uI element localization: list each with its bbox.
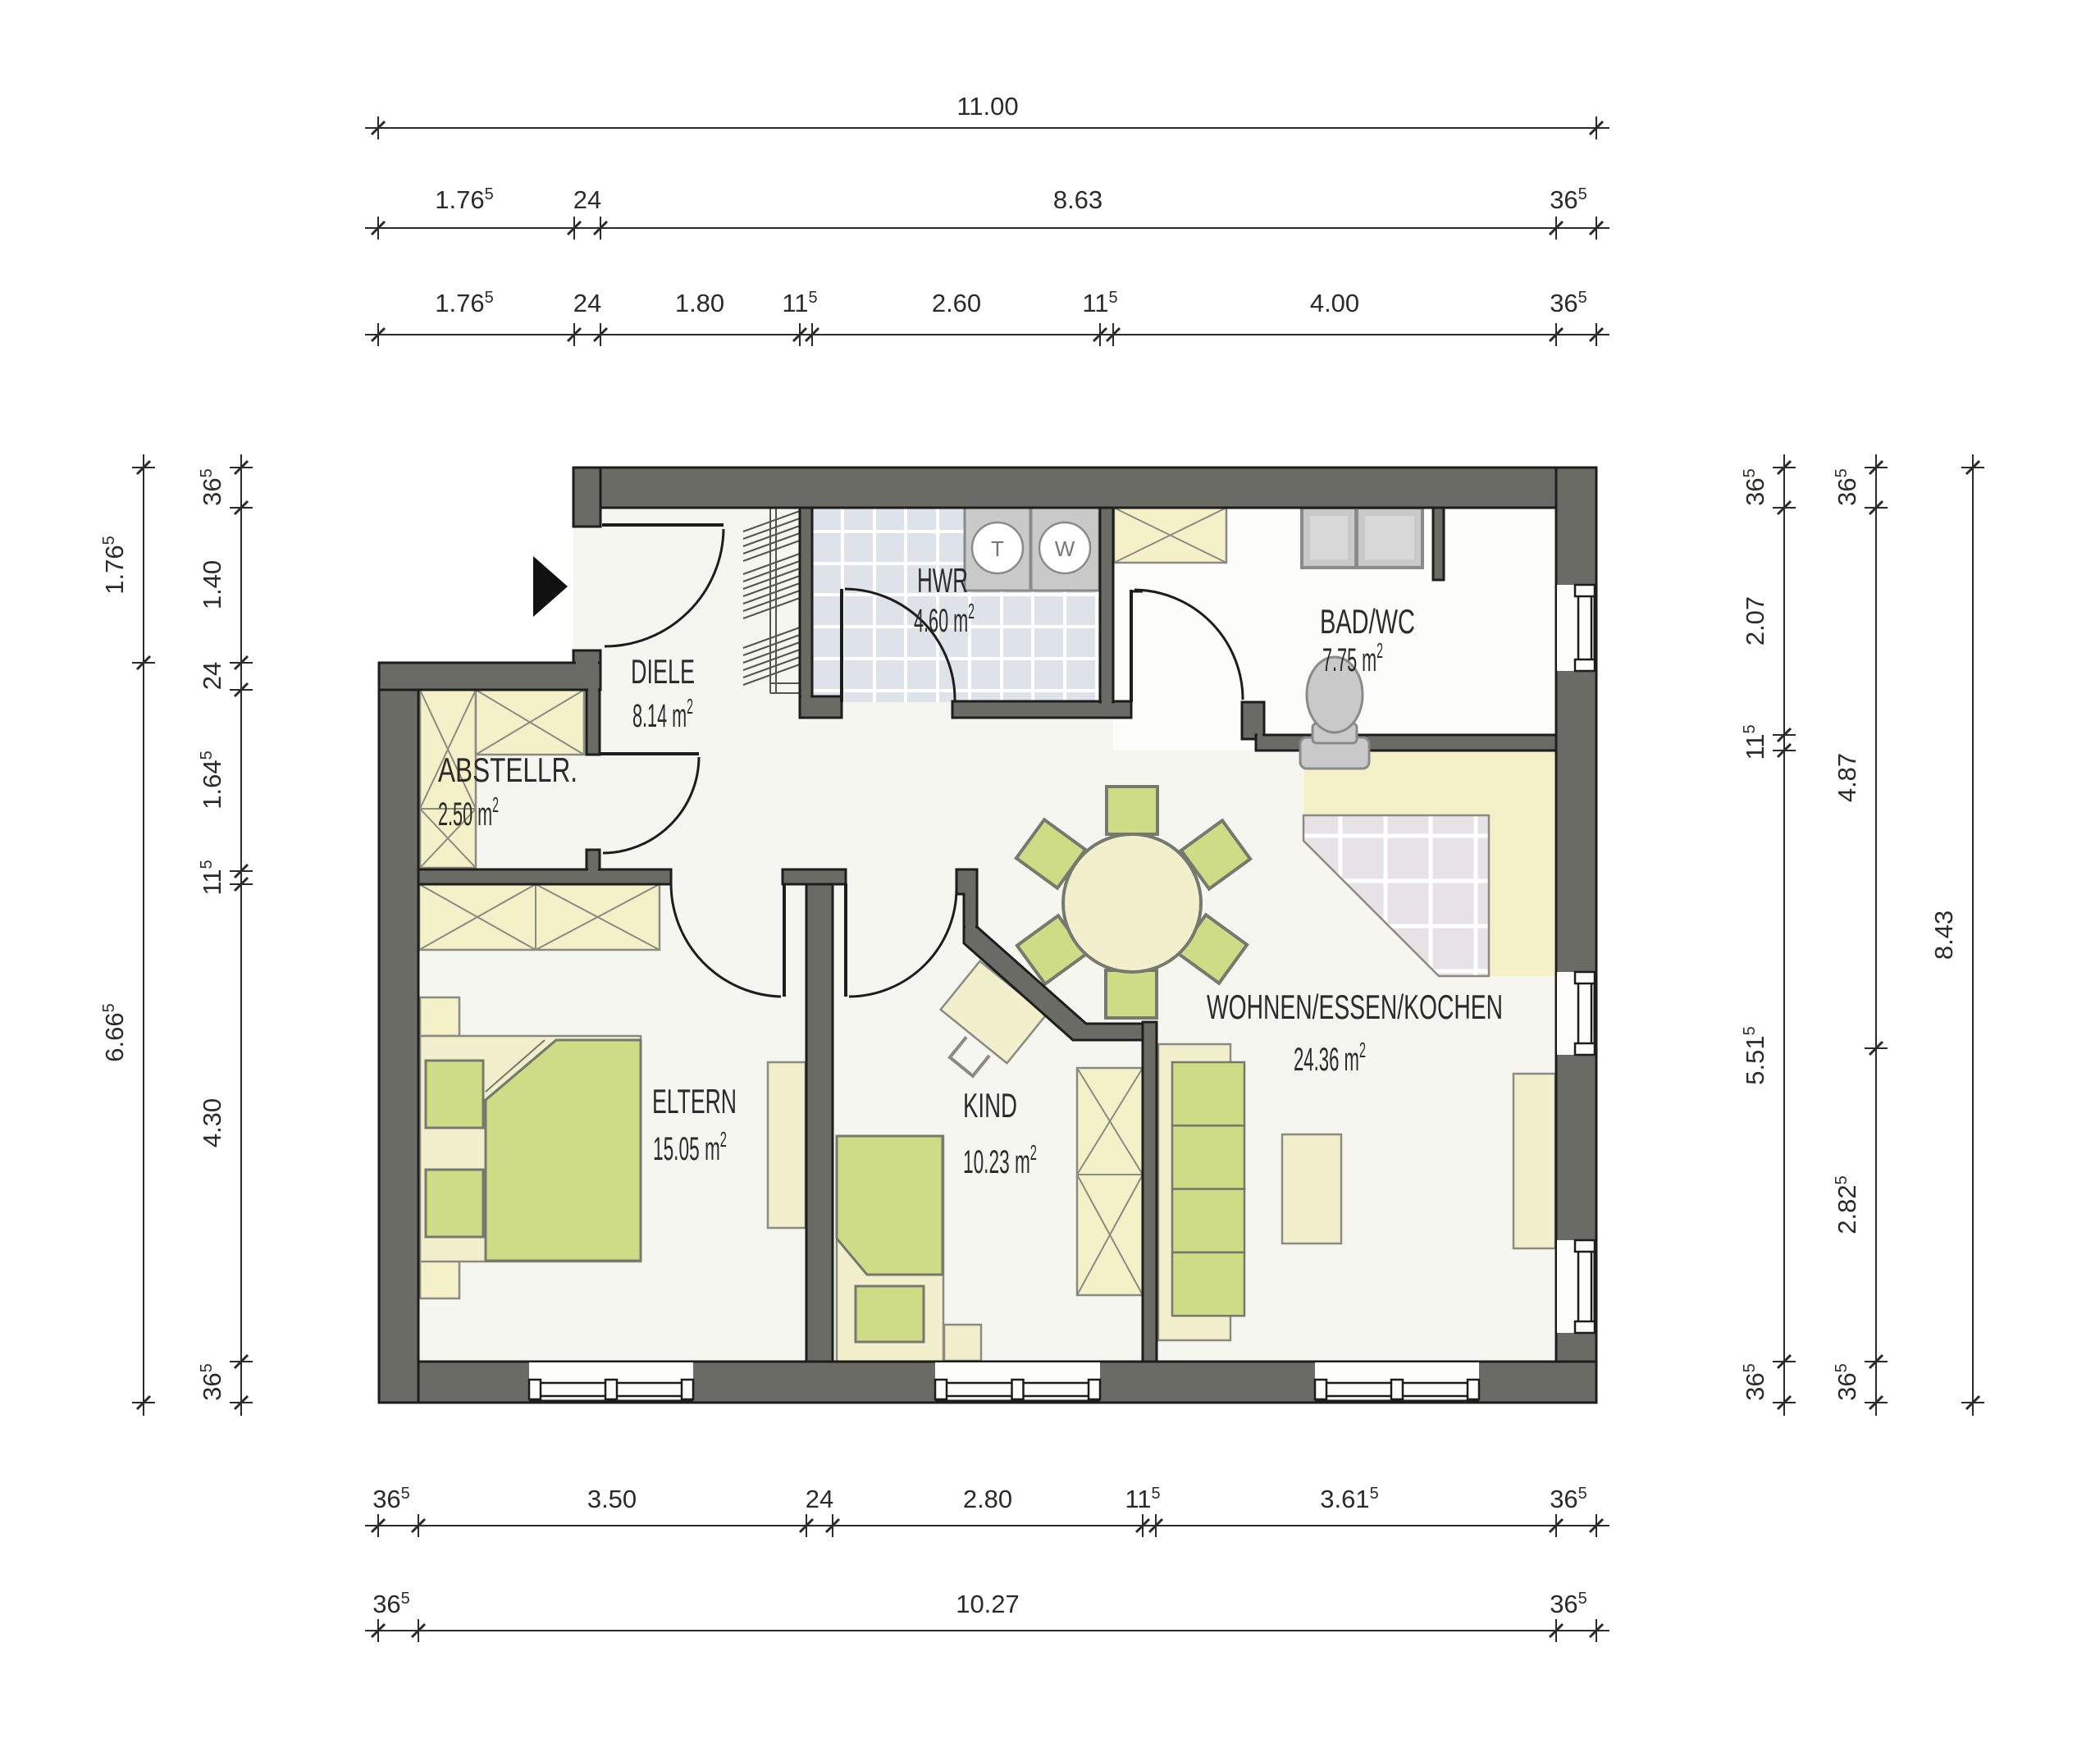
svg-text:10.23 m2: 10.23 m2 [963,1140,1037,1180]
svg-text:15.05 m2: 15.05 m2 [653,1127,727,1167]
svg-text:8.43: 8.43 [1929,910,1958,960]
svg-text:4.87: 4.87 [1833,753,1861,802]
svg-text:11.00: 11.00 [956,92,1018,121]
svg-text:24: 24 [198,662,226,690]
svg-text:1.40: 1.40 [198,560,226,609]
svg-text:HWR: HWR [917,561,968,600]
svg-text:8.14 m2: 8.14 m2 [632,694,693,734]
svg-text:2.80: 2.80 [963,1485,1012,1513]
svg-text:DIELE: DIELE [631,652,695,691]
svg-text:W: W [1055,536,1075,561]
svg-text:BAD/WC: BAD/WC [1320,602,1415,641]
svg-text:T: T [991,536,1004,561]
svg-text:ABSTELLR.: ABSTELLR. [438,751,577,789]
svg-text:2.07: 2.07 [1741,596,1769,646]
svg-text:24: 24 [573,289,601,317]
svg-text:24.36 m2: 24.36 m2 [1294,1038,1366,1078]
svg-text:4.60 m2: 4.60 m2 [914,599,975,639]
svg-text:2.60: 2.60 [932,289,981,317]
svg-text:24: 24 [573,185,601,214]
svg-text:4.00: 4.00 [1310,289,1359,317]
svg-text:ELTERN: ELTERN [652,1082,737,1120]
svg-text:3.50: 3.50 [587,1485,637,1513]
svg-text:10.27: 10.27 [956,1590,1020,1618]
svg-text:4.30: 4.30 [198,1098,226,1148]
svg-text:8.63: 8.63 [1053,185,1102,214]
svg-text:1.80: 1.80 [675,289,724,317]
svg-text:7.75 m2: 7.75 m2 [1322,638,1383,678]
svg-text:WOHNEN/ESSEN/KOCHEN: WOHNEN/ESSEN/KOCHEN [1207,988,1503,1026]
svg-text:24: 24 [806,1485,833,1513]
svg-text:KIND: KIND [963,1086,1017,1125]
svg-text:2.50 m2: 2.50 m2 [438,792,499,833]
